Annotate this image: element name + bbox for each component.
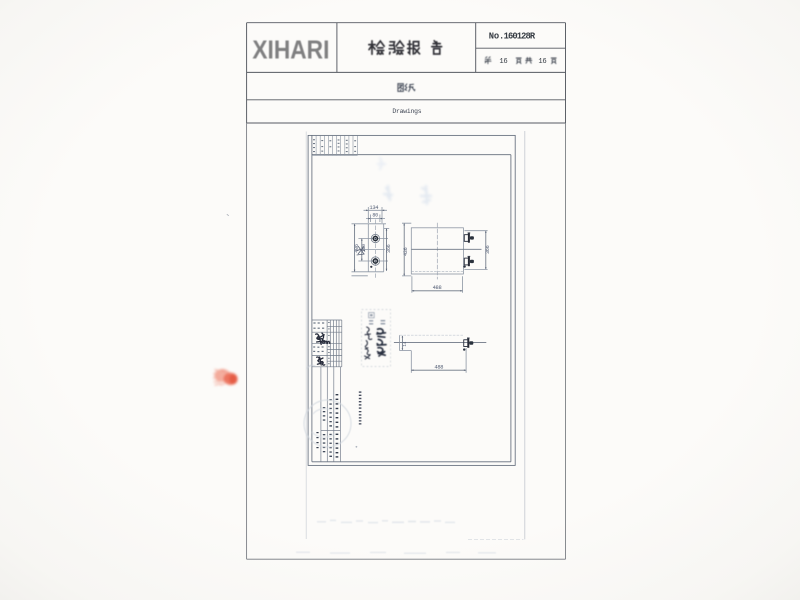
svg-text:16: 16 <box>538 58 546 66</box>
svg-text:488: 488 <box>433 285 442 291</box>
svg-text:Drawings: Drawings <box>392 108 421 115</box>
svg-text:XIHARI: XIHARI <box>252 36 329 64</box>
svg-text:406: 406 <box>354 244 360 253</box>
svg-text:134: 134 <box>369 205 378 211</box>
svg-text:366: 366 <box>485 245 491 254</box>
svg-text:80: 80 <box>372 212 378 218</box>
svg-text:366: 366 <box>386 244 392 253</box>
svg-text:160128R: 160128R <box>504 32 536 42</box>
svg-text:No.: No. <box>489 32 504 42</box>
svg-text:14: 14 <box>403 341 408 346</box>
svg-text:16: 16 <box>499 58 507 66</box>
svg-text:436: 436 <box>403 247 409 256</box>
svg-text:488: 488 <box>434 364 443 370</box>
